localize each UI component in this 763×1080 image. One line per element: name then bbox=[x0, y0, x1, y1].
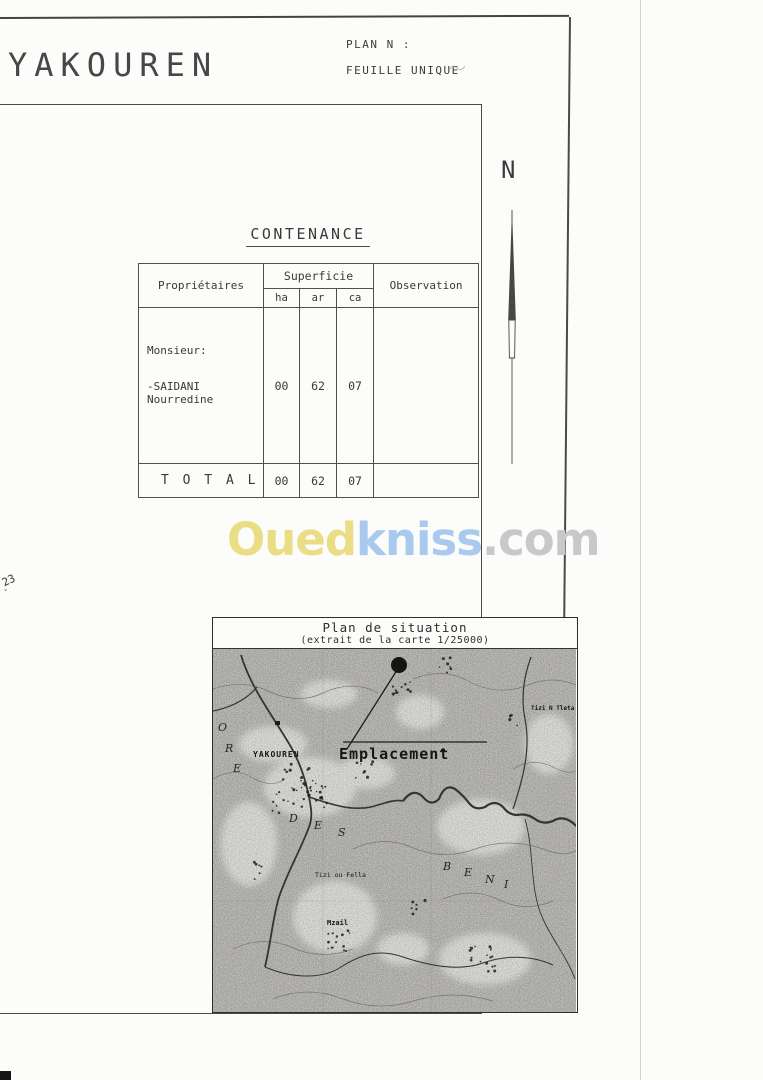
watermark-part-2: kniss bbox=[356, 513, 482, 566]
forest-letter: E bbox=[314, 819, 322, 832]
emplacement-label: Emplacement bbox=[339, 745, 449, 763]
topo-map-area: Emplacement YAKOUREN Tizi N Tleta Tizi o… bbox=[213, 649, 576, 1012]
total-ca-value: 07 bbox=[337, 464, 374, 498]
top-border-line bbox=[0, 15, 569, 19]
col-header-proprietaires: Propriétaires bbox=[139, 264, 264, 308]
owner-cell: Monsieur: -SAIDANI Nourredine bbox=[139, 308, 264, 464]
forest-letter: I bbox=[504, 878, 508, 891]
forest-letter: N bbox=[485, 873, 495, 886]
total-ar-value: 62 bbox=[300, 464, 337, 498]
col-header-ar: ar bbox=[300, 289, 337, 308]
scan-corner-mark bbox=[0, 1071, 11, 1080]
map-label-tizi-ou-fella: Tizi ou Fella bbox=[315, 871, 366, 879]
forest-letter: D bbox=[289, 812, 298, 825]
situation-map-titlebox: Plan de situation (extrait de la carte 1… bbox=[213, 618, 577, 649]
forest-letter: O bbox=[218, 721, 227, 734]
sheet-unique-label: FEUILLE UNIQUE bbox=[346, 64, 460, 77]
contenance-heading-wrap: CONTENANCE bbox=[138, 224, 478, 247]
table-row-owner: Monsieur: -SAIDANI Nourredine 00 62 07 bbox=[139, 308, 479, 464]
col-header-superficie: Superficie bbox=[264, 264, 374, 289]
total-ha-value: 00 bbox=[264, 464, 300, 498]
owner-ca-value: 07 bbox=[337, 308, 374, 464]
north-arrow-icon bbox=[495, 204, 539, 471]
owner-observation-cell bbox=[374, 308, 479, 464]
contenance-heading: CONTENANCE bbox=[246, 225, 369, 247]
north-indicator: N bbox=[495, 156, 539, 471]
forest-letter: R bbox=[225, 742, 233, 755]
scan-artifact bbox=[448, 62, 466, 74]
contenance-table: Propriétaires Superficie Observation ha … bbox=[138, 263, 479, 498]
owner-ar-value: 62 bbox=[300, 308, 337, 464]
commune-title: YAKOUREN bbox=[8, 46, 218, 84]
situation-map-subtitle: (extrait de la carte 1/25000) bbox=[213, 635, 577, 646]
forest-letter: S bbox=[338, 826, 346, 839]
forest-letter: E bbox=[464, 866, 472, 879]
watermark-part-1: Oued bbox=[227, 513, 356, 566]
location-marker-icon bbox=[391, 657, 407, 673]
scanned-cadastral-plan: YAKOUREN PLAN N : FEUILLE UNIQUE CONTENA… bbox=[0, 0, 763, 1080]
total-observation-cell bbox=[374, 464, 479, 498]
col-header-observation: Observation bbox=[374, 264, 479, 308]
col-header-ha: ha bbox=[264, 289, 300, 308]
north-label: N bbox=[501, 156, 515, 184]
map-label-tizi-n-tleta: Tizi N Tleta bbox=[531, 705, 574, 712]
owner-name: -SAIDANI Nourredine bbox=[147, 380, 259, 406]
plan-number-label: PLAN N : bbox=[346, 38, 411, 51]
topo-map-image bbox=[213, 649, 576, 1012]
watermark-part-3: .com bbox=[482, 513, 600, 566]
col-header-ca: ca bbox=[337, 289, 374, 308]
scan-page-edge bbox=[640, 0, 641, 1080]
owner-prefix: Monsieur: bbox=[147, 344, 259, 357]
situation-map-title: Plan de situation bbox=[213, 620, 577, 635]
map-label-yakouren: YAKOUREN bbox=[253, 750, 300, 759]
table-row-total: T O T A L 00 62 07 bbox=[139, 464, 479, 498]
ouedkniss-watermark: Ouedkniss.com bbox=[227, 513, 600, 566]
map-label-mzail: Mzail bbox=[327, 919, 348, 927]
situation-map: Plan de situation (extrait de la carte 1… bbox=[212, 617, 578, 1013]
owner-ha-value: 00 bbox=[264, 308, 300, 464]
total-label: T O T A L bbox=[139, 464, 264, 498]
forest-letter: E bbox=[233, 762, 241, 775]
forest-letter: B bbox=[443, 860, 451, 873]
